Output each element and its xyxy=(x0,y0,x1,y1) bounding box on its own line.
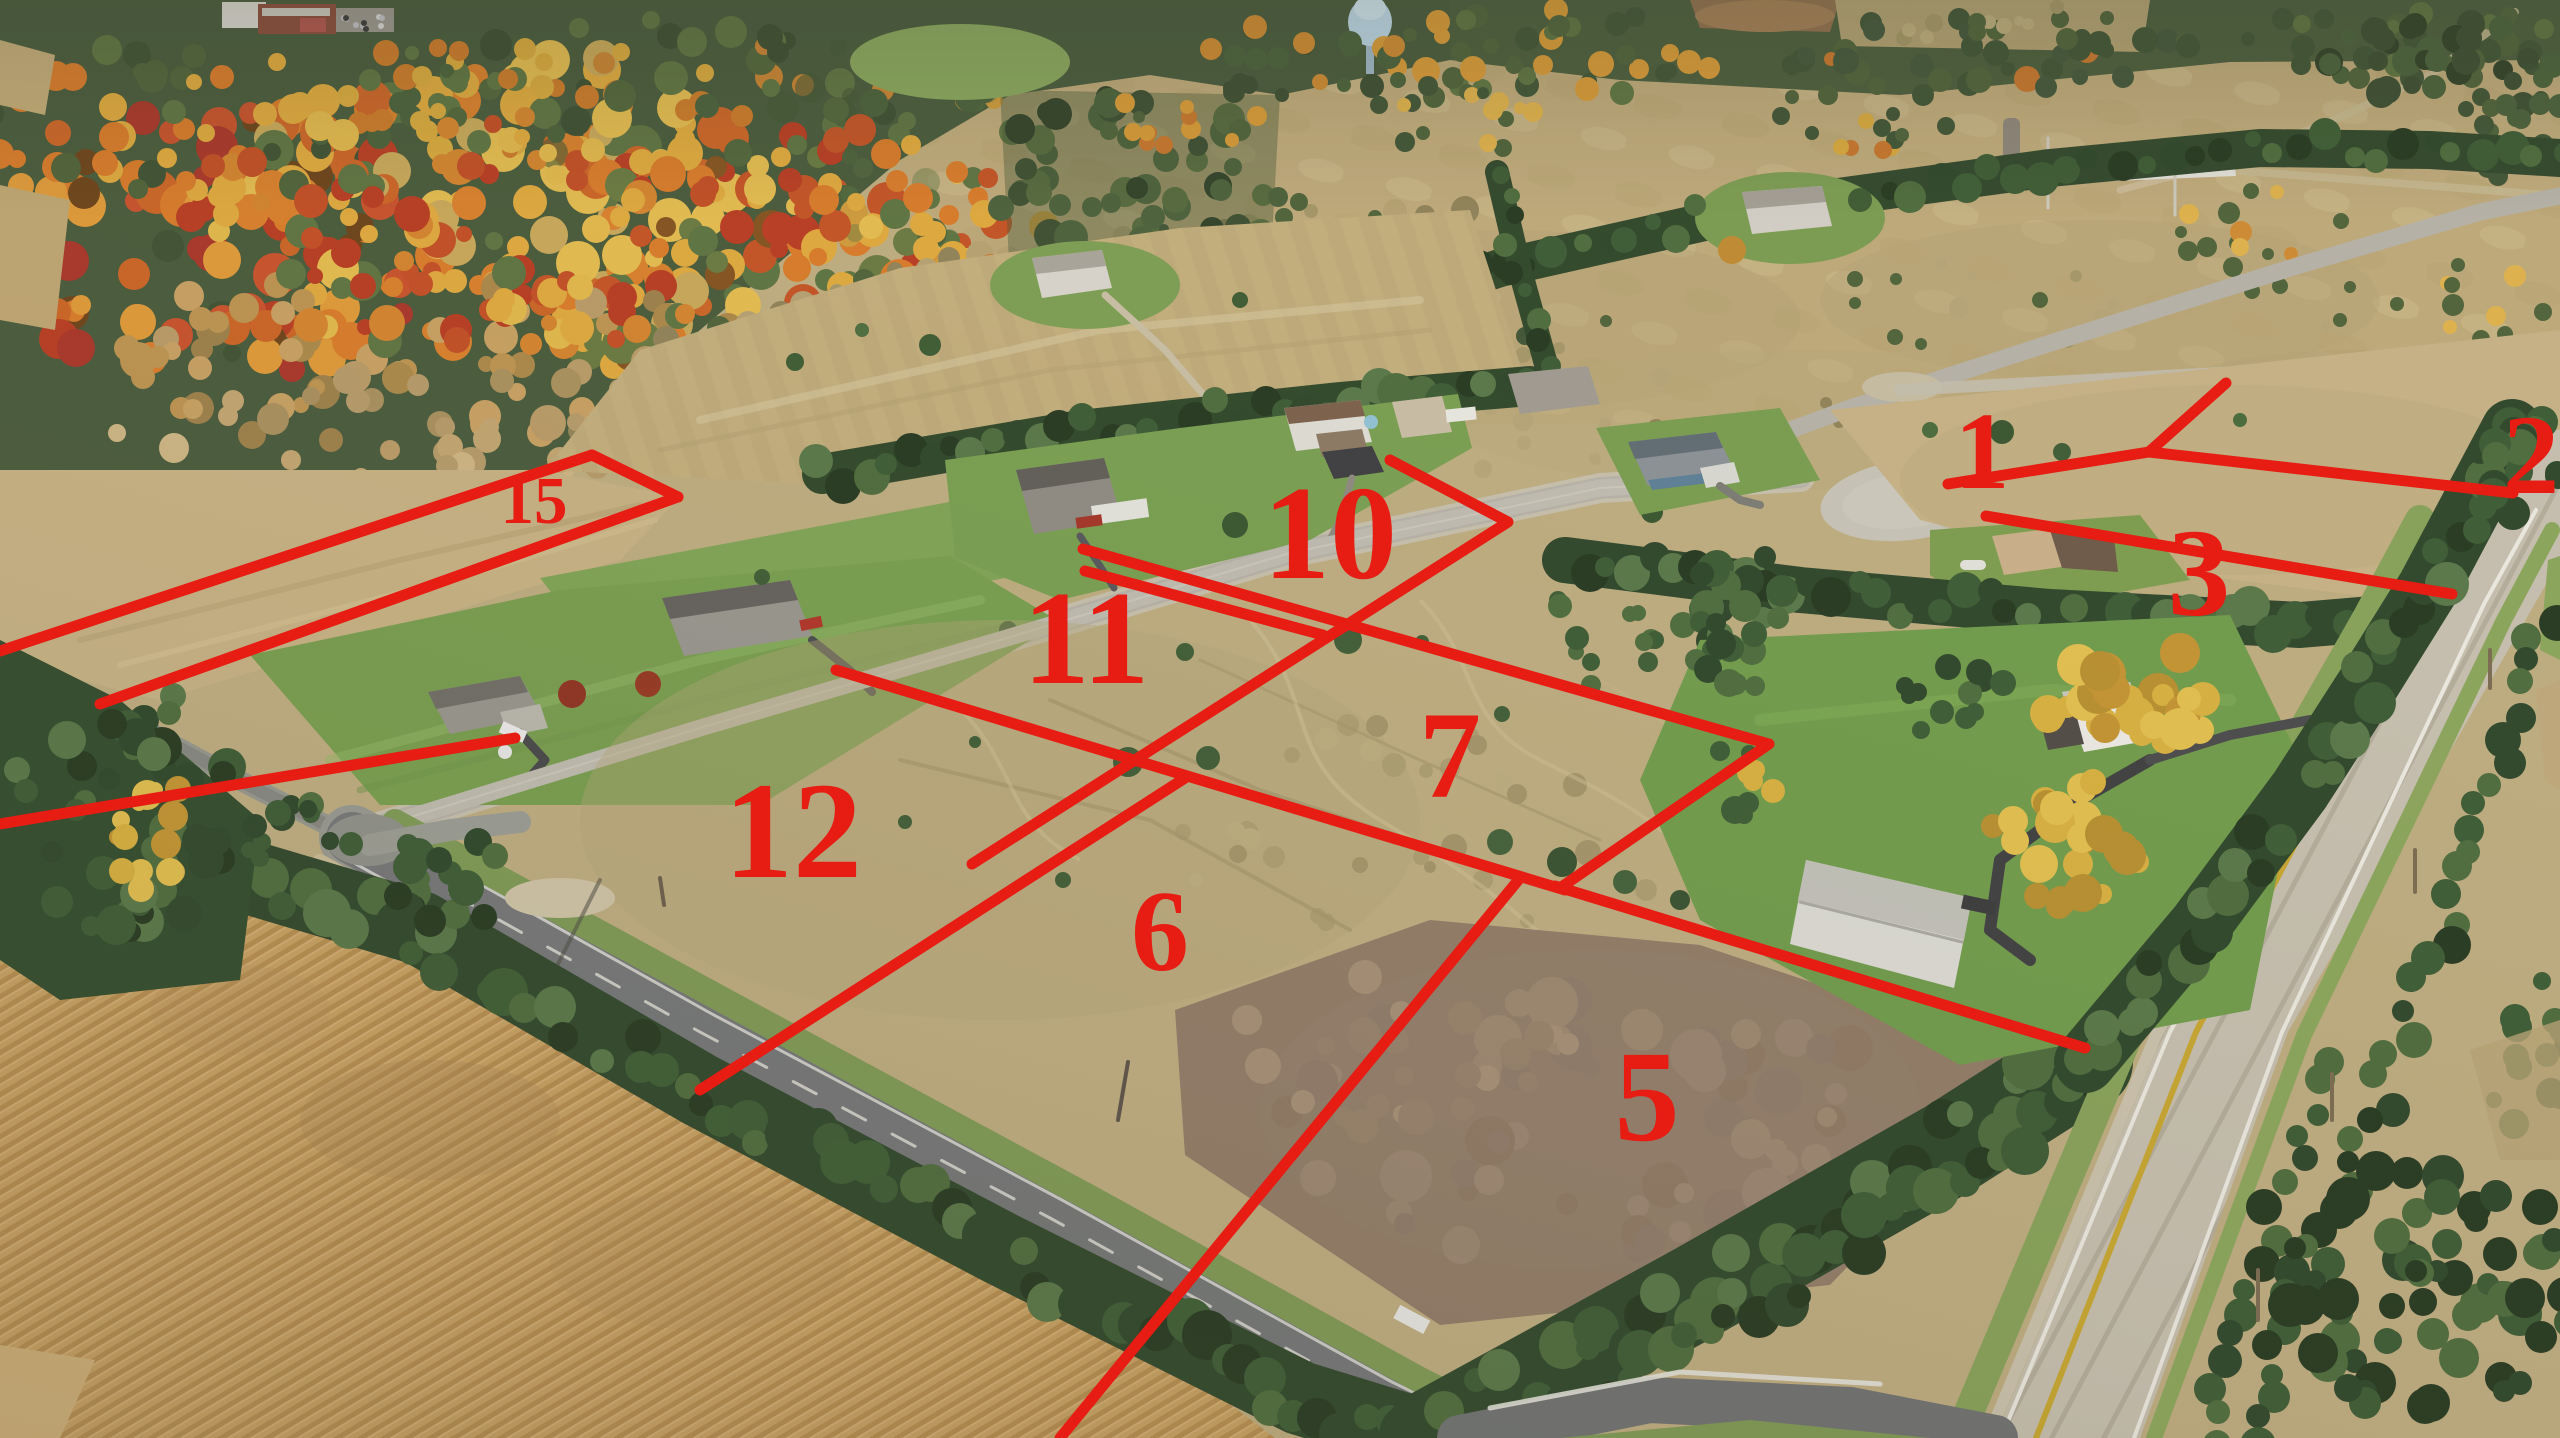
svg-text:15: 15 xyxy=(501,464,568,538)
svg-text:1: 1 xyxy=(1955,390,2010,512)
svg-text:7: 7 xyxy=(1419,687,1481,824)
svg-text:11: 11 xyxy=(1023,564,1150,712)
svg-text:10: 10 xyxy=(1263,459,1397,607)
svg-text:12: 12 xyxy=(724,754,862,907)
svg-text:5: 5 xyxy=(1615,1025,1680,1169)
svg-text:6: 6 xyxy=(1131,868,1189,996)
svg-text:3: 3 xyxy=(2168,505,2231,643)
svg-text:2: 2 xyxy=(2503,393,2560,518)
